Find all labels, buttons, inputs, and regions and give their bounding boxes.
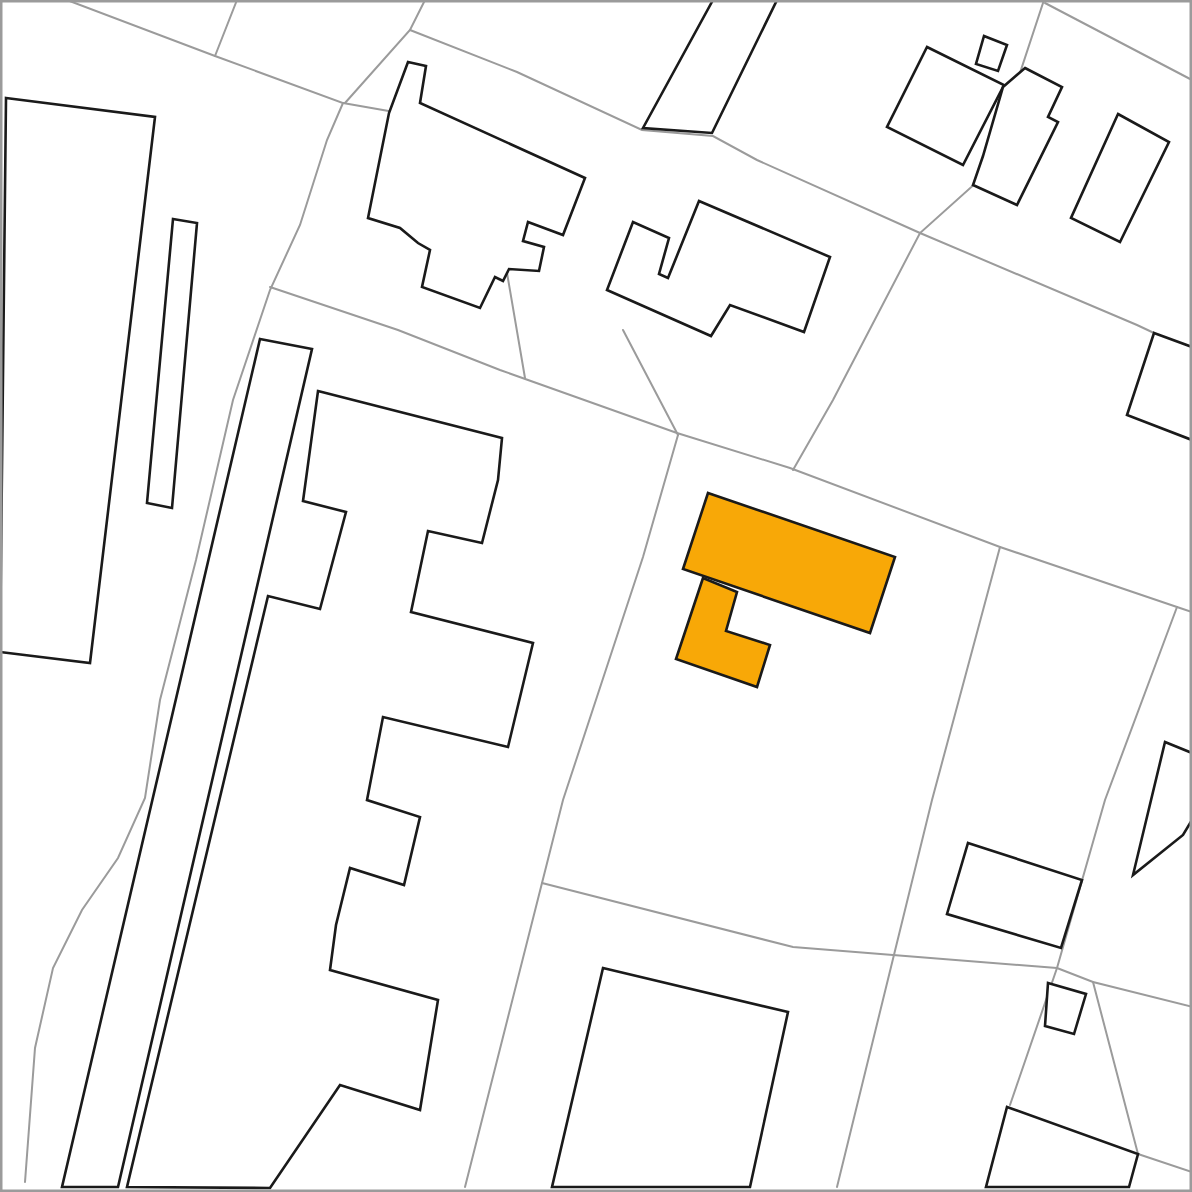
map-viewport[interactable] <box>0 0 1192 1192</box>
cadastral-map[interactable] <box>0 0 1192 1192</box>
